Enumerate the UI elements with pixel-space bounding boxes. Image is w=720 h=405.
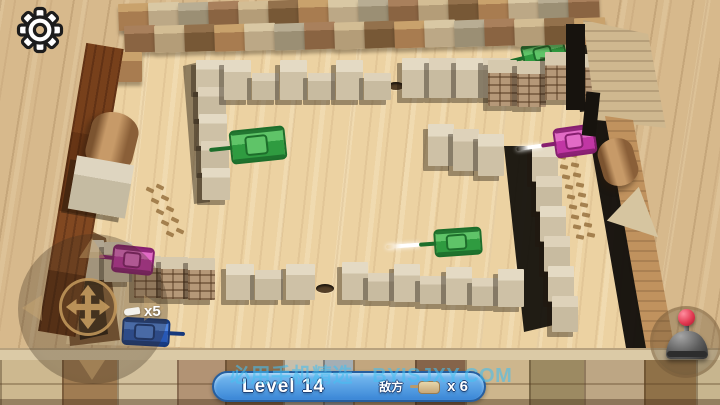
wall-block: [214, 23, 246, 51]
track-mark: [166, 230, 175, 237]
watermark-text: 必用手机精选 · BYISJXY.COM: [230, 359, 510, 388]
track-mark: [569, 204, 578, 210]
enemy-tank-green-1: [228, 125, 287, 165]
wall-block: [394, 20, 426, 48]
track-mark: [577, 192, 586, 198]
wall-block: [420, 276, 446, 304]
track-mark: [586, 232, 595, 238]
bullet-icon: [124, 307, 141, 316]
joystick-knob[interactable]: [59, 278, 117, 336]
wall-block: [342, 262, 368, 300]
track-mark: [575, 182, 584, 188]
wall-block: [188, 258, 215, 300]
wall-block: [304, 22, 336, 50]
track-mark: [176, 227, 185, 234]
wall-block: [454, 19, 486, 47]
wall-block: [517, 61, 546, 107]
wooden-block-left: [68, 155, 134, 218]
track-mark: [562, 174, 571, 180]
wall-block: [446, 267, 472, 305]
fire-button-band: [667, 351, 707, 357]
gear-icon: [16, 6, 64, 54]
wall-block: [334, 21, 366, 49]
track-mark: [580, 202, 589, 208]
game-screen: x5 Level 14 敌方 x 6 必用手机精选 · BYISJXY.COM: [0, 0, 720, 405]
wall-block: [154, 24, 186, 52]
enemy-tank-green-3: [433, 226, 483, 257]
track-mark: [564, 184, 573, 190]
settings-button[interactable]: [16, 6, 64, 54]
tank-turret: [244, 134, 269, 155]
move-cross-icon: [65, 284, 111, 330]
wall-block: [453, 129, 479, 171]
wall-block: [552, 296, 578, 332]
wall-block: [488, 60, 517, 106]
wall-block: [364, 21, 396, 49]
track-mark: [156, 183, 165, 190]
wall-block: [472, 278, 498, 306]
joystick-down-arrow-icon: [79, 360, 105, 380]
wall-block: [498, 269, 524, 307]
track-mark: [582, 212, 591, 218]
wall-block: [280, 60, 307, 100]
track-mark: [560, 164, 569, 170]
wall-block: [252, 73, 279, 100]
wall-block: [244, 23, 276, 51]
track-mark: [571, 162, 580, 168]
track-mark: [161, 194, 170, 201]
wall-block: [226, 264, 254, 300]
track-mark: [571, 214, 580, 220]
wall-block: [124, 25, 156, 53]
wall-block: [286, 264, 315, 300]
wall-block: [428, 124, 454, 166]
wall-block: [224, 60, 251, 100]
track-mark: [584, 222, 593, 228]
wall-block: [484, 18, 516, 46]
wall-block: [478, 134, 504, 176]
track-mark: [573, 172, 582, 178]
fire-button-red-knob: [678, 309, 695, 326]
wall-block: [336, 60, 363, 100]
wall-block: [364, 73, 391, 100]
joystick-up-arrow-icon: [79, 238, 105, 258]
track-mark: [171, 216, 180, 223]
wall-block: [368, 273, 394, 301]
wall-block: [402, 58, 429, 98]
player-ammo-indicator: x5: [124, 303, 161, 320]
ground-hole: [316, 284, 334, 293]
wall-block: [456, 58, 483, 98]
wall-block: [308, 73, 335, 100]
track-mark: [575, 234, 584, 240]
wall-block: [184, 24, 216, 52]
track-mark: [566, 194, 575, 200]
track-mark: [146, 186, 155, 193]
wall-block: [255, 270, 283, 300]
tank-turret: [446, 234, 467, 251]
wall-block: [274, 22, 306, 50]
track-mark: [156, 208, 165, 215]
wall-block: [514, 18, 546, 46]
top-right-dark-wall: [566, 24, 585, 110]
track-mark: [161, 219, 170, 226]
wall-block: [424, 19, 456, 47]
wall-block: [394, 264, 420, 302]
fire-button[interactable]: [650, 306, 720, 378]
wall-block: [202, 168, 230, 200]
track-mark: [573, 224, 582, 230]
track-mark: [151, 197, 160, 204]
wall-block: [429, 58, 456, 98]
joystick-left-arrow-icon: [22, 295, 42, 321]
ammo-count-label: x5: [144, 303, 161, 320]
tank-turret: [564, 132, 584, 151]
track-mark: [166, 205, 175, 212]
muzzle-flash: [386, 243, 420, 249]
